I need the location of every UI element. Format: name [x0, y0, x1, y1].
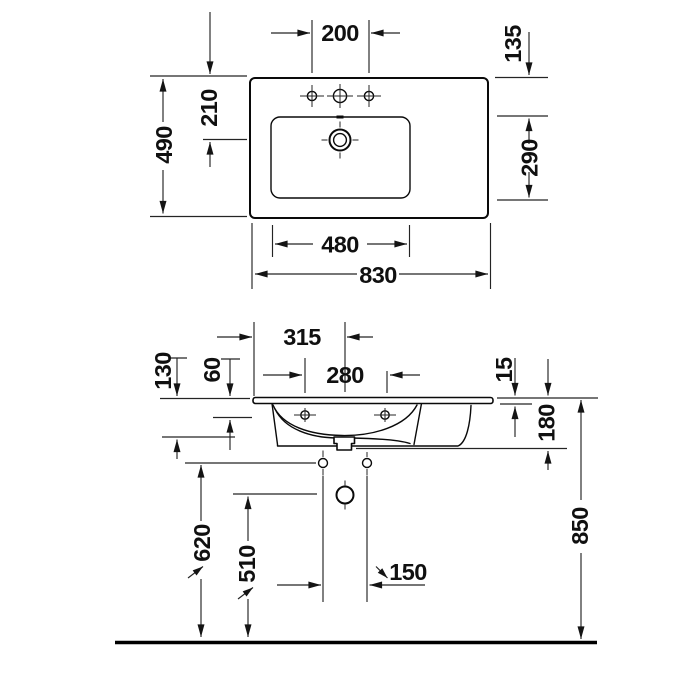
dim-bowl-width: 480	[273, 225, 410, 258]
dim-label-480: 480	[321, 232, 359, 258]
dim-ceramic-height: 180	[534, 359, 560, 470]
rim-slab	[253, 398, 493, 404]
fixing-hole-left-icon	[294, 408, 316, 422]
dim-rear-offset: 135	[495, 25, 548, 78]
dim-label-180: 180	[534, 404, 560, 442]
dim-rear-to-drain: 210	[196, 12, 247, 167]
dim-trap-height: 510	[234, 497, 260, 638]
top-view: 200 135 490 210 290	[150, 12, 548, 289]
front-view: 315 280 130 60	[115, 322, 598, 643]
dim-label-510: 510	[234, 545, 260, 583]
dim-label-620: 620	[189, 524, 215, 562]
dim-label-15: 15	[491, 357, 517, 382]
dim-label-290: 290	[517, 139, 543, 177]
bowl-right-wall	[414, 404, 422, 445]
dim-label-315: 315	[283, 324, 321, 350]
dim-label-280: 280	[326, 362, 364, 388]
dim-label-150: 150	[389, 559, 427, 585]
tap-hole-left-icon	[300, 85, 324, 107]
washbasin-technical-drawing: 200 135 490 210 290	[0, 0, 700, 700]
dim-label-490: 490	[151, 126, 177, 164]
ref-arrow-620-icon	[188, 567, 203, 579]
dim-fixing-hole-spacing: 280	[263, 358, 420, 393]
technical-drawing-page: 200 135 490 210 290	[0, 0, 700, 700]
dim-rim-thickness: 15	[491, 357, 517, 437]
fixing-hole-right-icon	[374, 408, 396, 422]
tap-holes	[300, 84, 381, 108]
tap-hole-center-icon	[327, 84, 353, 108]
dim-top-to-fixing-hole: 60	[199, 357, 252, 450]
supply-hole-right-icon	[363, 452, 372, 476]
basin-body-profile	[272, 404, 471, 447]
waste-outlet-icon	[337, 481, 354, 510]
dim-label-830: 830	[359, 262, 397, 288]
dim-bowl-depth: 290	[497, 116, 548, 200]
dim-label-60: 60	[199, 357, 225, 382]
dim-label-130: 130	[150, 352, 176, 390]
dim-label-135: 135	[500, 25, 526, 63]
dim-label-200: 200	[321, 20, 359, 46]
bowl-rim-curve	[273, 405, 417, 436]
dim-pipe-spacing: 150	[277, 559, 427, 585]
dim-label-850: 850	[567, 507, 593, 545]
drain-icon	[322, 122, 359, 159]
dim-outlet-height: 620	[188, 465, 215, 637]
dim-width-overall: 830	[252, 223, 491, 289]
tap-hole-right-icon	[357, 85, 381, 107]
ref-arrow-510-icon	[238, 588, 253, 600]
dim-tap-hole-spacing: 200	[271, 20, 400, 73]
ref-arrow-150-icon	[376, 567, 388, 579]
basin-front-outline	[253, 398, 493, 451]
dim-label-210: 210	[196, 89, 222, 127]
bowl-bottom-curve-right	[352, 438, 410, 444]
supply-hole-left-icon	[319, 451, 328, 476]
drain-outlet-fitting	[334, 437, 355, 450]
dim-rim-height: 850	[567, 400, 593, 639]
